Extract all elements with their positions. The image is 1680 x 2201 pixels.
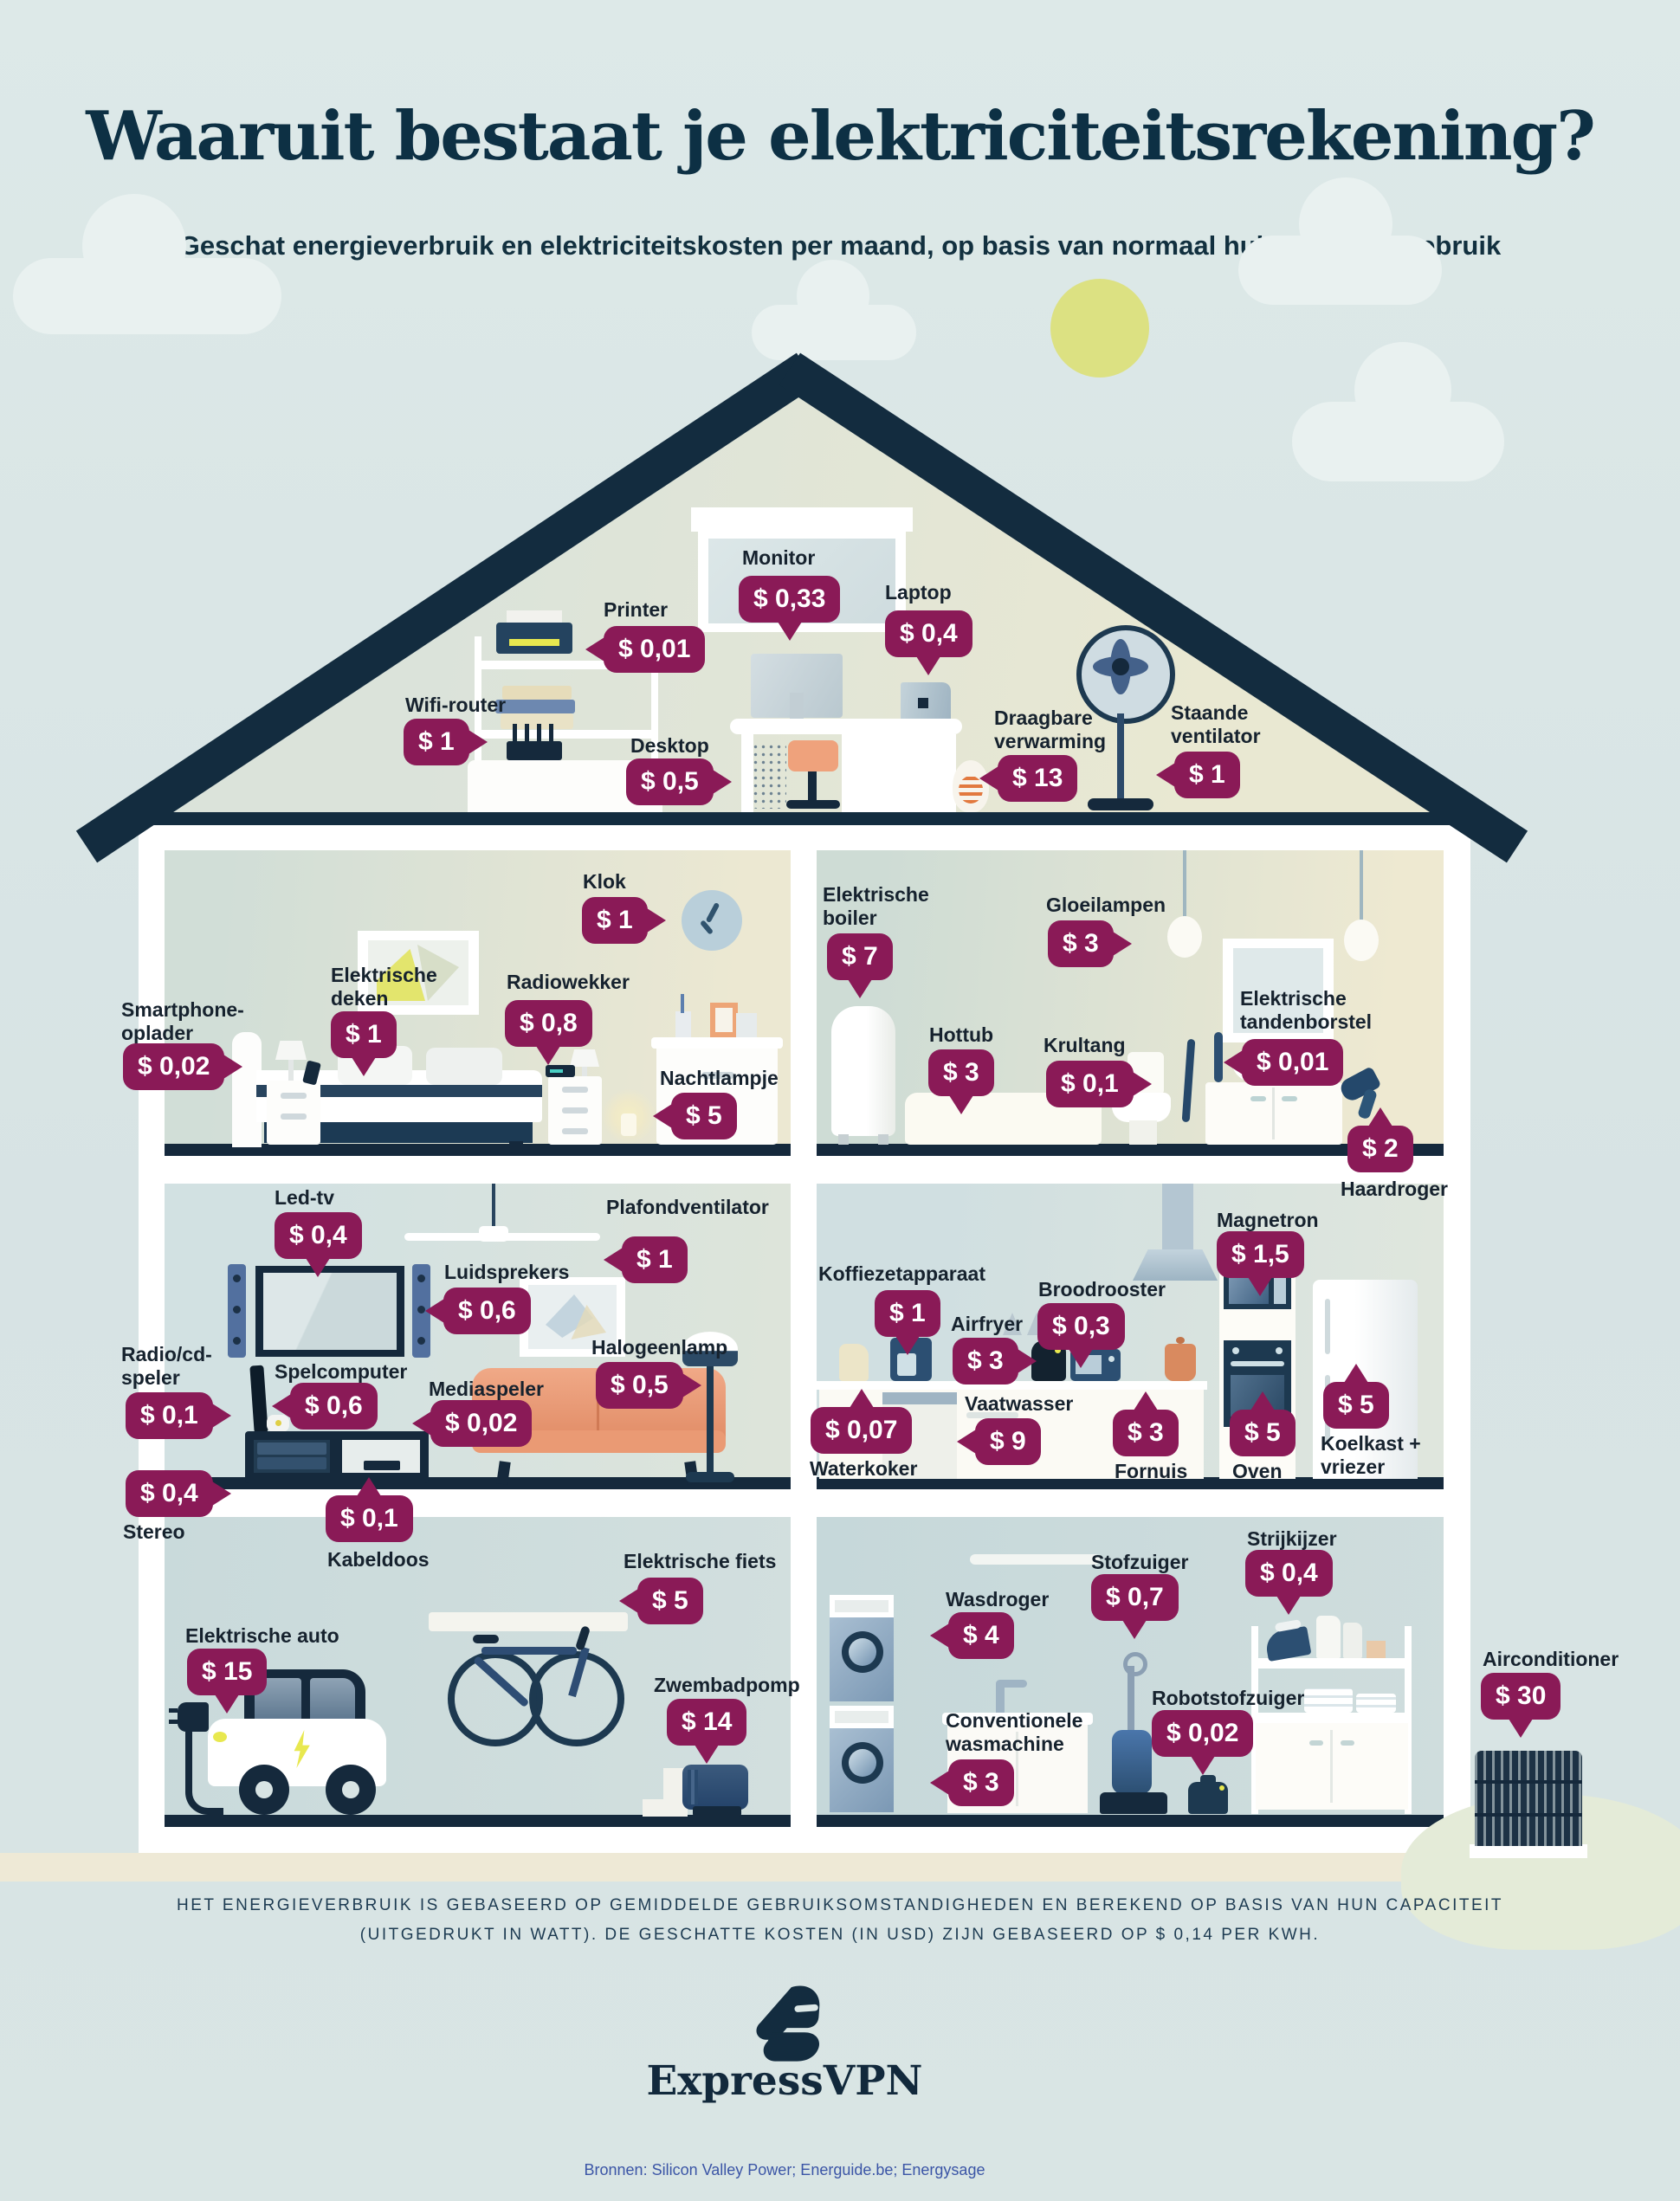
vacuum-price-badge: $ 0,7	[1091, 1574, 1179, 1621]
electric-car-label: Elektrische auto	[185, 1624, 339, 1648]
machine-panel	[835, 1711, 888, 1723]
toilet-pedestal	[1129, 1120, 1157, 1145]
printer-label: Printer	[604, 598, 668, 622]
coffee-pot	[897, 1353, 916, 1376]
nightstand	[267, 1081, 320, 1145]
hairdryer-price-badge: $ 2	[1347, 1126, 1413, 1172]
vanity-cabinet	[1205, 1082, 1342, 1145]
water-heater-illustration	[831, 1006, 895, 1136]
light-bulbs-label: Gloeilampen	[1046, 894, 1166, 917]
halogen-lamp-label: Halogeenlamp	[591, 1336, 727, 1359]
towel-stack	[1304, 1688, 1353, 1713]
laptop-label: Laptop	[885, 581, 952, 604]
disclaimer-line-2: (UITGEDRUKT IN WATT). DE GESCHATTE KOSTE…	[0, 1926, 1680, 1945]
cabinet-handle	[1282, 1096, 1297, 1101]
pool-pump-pipe-h	[643, 1799, 688, 1817]
pool-pump-base	[693, 1806, 741, 1817]
drawer-handle	[562, 1087, 588, 1093]
ceiling-fan-label: Plafondventilator	[606, 1196, 769, 1219]
water-heater-price-badge: $ 7	[827, 933, 893, 980]
coffee-maker-label: Koffiezetapparaat	[818, 1262, 985, 1286]
clock-price-badge: $ 1	[582, 897, 648, 944]
tv-screen	[263, 1273, 397, 1350]
speaker-cone	[233, 1337, 241, 1345]
curling-iron-price-badge: $ 0,1	[1046, 1061, 1134, 1107]
fridge-freezer-label: Koelkast + vriezer	[1321, 1432, 1421, 1479]
charging-plug-illustration	[178, 1702, 209, 1732]
electric-bike-label: Elektrische fiets	[624, 1550, 776, 1573]
desktop-tower-illustration	[752, 743, 786, 809]
dishwasher-price-badge: $ 9	[975, 1418, 1041, 1465]
light-bulbs-price-badge: $ 3	[1048, 920, 1114, 967]
machine-door-glass	[849, 1638, 876, 1666]
cooking-pot-illustration	[1165, 1344, 1196, 1381]
ac-divider	[1475, 1813, 1582, 1817]
pot-lid-knob	[1176, 1337, 1185, 1344]
cabinet-handle	[1341, 1740, 1354, 1746]
dryer-price-badge: $ 4	[948, 1612, 1014, 1659]
media-player-label: Mediaspeler	[429, 1378, 544, 1401]
robot-vacuum-price-badge: $ 0,02	[1152, 1710, 1253, 1757]
fridge-freezer-price-badge: $ 5	[1323, 1382, 1389, 1429]
stereo-price-badge: $ 0,4	[126, 1470, 213, 1517]
pendant-bulb	[1167, 916, 1202, 958]
dryer-illustration	[830, 1595, 894, 1701]
expressvpn-logo-icon	[750, 1985, 821, 2062]
machine-door-glass	[849, 1749, 876, 1777]
microwave-price-badge: $ 1,5	[1217, 1231, 1304, 1278]
cabinet-handle	[1309, 1740, 1323, 1746]
detergent-bottle	[1316, 1616, 1341, 1658]
table-lamp	[275, 1041, 307, 1060]
clock-label: Klok	[583, 870, 626, 894]
coffee-maker-price-badge: $ 1	[875, 1290, 940, 1337]
boiler-leg	[838, 1134, 849, 1145]
pen-cup	[675, 1011, 691, 1037]
desk	[730, 719, 962, 734]
wall-clock	[682, 890, 742, 951]
attic-window-cornice	[691, 507, 913, 532]
pump-rings	[688, 1770, 698, 1804]
halogen-lamp-price-badge: $ 0,5	[596, 1362, 683, 1409]
wifi-router-label: Wifi-router	[405, 694, 506, 717]
hottub-price-badge: $ 3	[928, 1049, 994, 1096]
hottub-label: Hottub	[929, 1023, 993, 1047]
monitor-price-badge: $ 0,33	[739, 576, 840, 623]
bike-saddle	[473, 1635, 499, 1643]
oven-label: Oven	[1232, 1460, 1283, 1483]
pen	[681, 994, 684, 1013]
speaker-illustration	[228, 1264, 246, 1358]
disclaimer-line-1: HET ENERGIEVERBRUIK IS GEBASEERD OP GEMI…	[0, 1896, 1680, 1915]
cabinet-divider	[1272, 1088, 1275, 1139]
iron-price-badge: $ 0,4	[1245, 1550, 1333, 1597]
radio-cd-player-label: Radio/cd- speler	[121, 1343, 212, 1390]
speakers-label: Luidsprekers	[444, 1261, 569, 1284]
chair-base	[786, 800, 840, 809]
ceiling-fan-price-badge: $ 1	[622, 1236, 688, 1283]
ceiling-light	[970, 1554, 1100, 1565]
clock-radio-illustration	[546, 1065, 575, 1077]
dishwasher-label: Vaatwasser	[965, 1392, 1073, 1416]
fan-hub	[1112, 658, 1129, 675]
roof	[0, 0, 1680, 875]
pool-pump-illustration	[682, 1765, 748, 1810]
wifi-router-illustration	[507, 741, 562, 760]
stereo-receiver	[257, 1457, 326, 1469]
chair-column	[808, 771, 817, 801]
speaker-cone	[233, 1306, 241, 1313]
stove-price-badge: $ 3	[1113, 1410, 1179, 1456]
oven-knob	[1276, 1347, 1283, 1354]
air-conditioner-label: Airconditioner	[1483, 1648, 1619, 1671]
detergent-box	[1367, 1641, 1386, 1658]
laptop-key	[918, 698, 928, 708]
vacuum-label: Stofzuiger	[1091, 1551, 1188, 1574]
plug-prong	[169, 1708, 178, 1713]
speaker-cone	[417, 1275, 425, 1282]
nightstand	[548, 1076, 602, 1145]
pendant-bulb	[1344, 920, 1379, 961]
washing-machine-price-badge: $ 3	[948, 1759, 1014, 1806]
media-player-price-badge: $ 0,02	[430, 1400, 532, 1447]
stereo-label: Stereo	[123, 1520, 185, 1544]
car-wheel	[239, 1765, 289, 1815]
card-frame	[736, 1013, 757, 1037]
towel-stack	[1356, 1694, 1396, 1713]
pendant-cord	[1183, 850, 1186, 918]
vacuum-pole	[1128, 1666, 1134, 1732]
hairdryer-label: Haardroger	[1341, 1178, 1448, 1201]
book	[495, 700, 575, 713]
standing-fan-label: Staande ventilator	[1171, 701, 1261, 748]
monitor-stand	[790, 693, 804, 719]
car-wheel	[326, 1765, 376, 1815]
ceiling-fan-hub	[479, 1226, 508, 1242]
books-illustration	[502, 686, 572, 700]
lamp-stem	[288, 1060, 294, 1081]
clock-radio-display	[550, 1069, 563, 1073]
sources-line: Bronnen: Silicon Valley Power; Energuide…	[0, 2161, 1625, 2179]
fan-cord	[492, 1184, 495, 1230]
kettle-price-badge: $ 0,07	[811, 1407, 912, 1454]
robot-vacuum-label: Robotstofzuiger	[1152, 1687, 1304, 1710]
fridge-handle	[1325, 1299, 1330, 1354]
electric-blanket-label: Elektrische deken	[331, 964, 437, 1010]
robot-bump	[1200, 1775, 1216, 1782]
washing-machine-label: Conventionele wasmachine	[946, 1709, 1082, 1756]
vacuum-base	[1100, 1792, 1167, 1814]
router-antenna	[549, 724, 553, 741]
game-console-price-badge: $ 0,6	[290, 1383, 378, 1430]
fan-base	[1088, 798, 1153, 810]
pool-pump-label: Zwembadpomp	[654, 1674, 800, 1697]
airfryer-label: Airfryer	[951, 1313, 1023, 1336]
wheel-hub	[342, 1781, 359, 1798]
infographic-page: Waaruit bestaat je elektriciteitsrekenin…	[0, 0, 1680, 2201]
bed-leg	[509, 1141, 523, 1153]
cabinet-divider	[1330, 1730, 1333, 1803]
laptop-price-badge: $ 0,4	[885, 610, 972, 657]
clock-hand	[706, 902, 720, 923]
drawer-handle	[281, 1093, 307, 1099]
airfryer-price-badge: $ 3	[953, 1338, 1018, 1384]
ac-unit-illustration	[1475, 1751, 1582, 1846]
monitor-label: Monitor	[742, 546, 815, 570]
led-tv-label: Led-tv	[275, 1186, 334, 1210]
vacuum-body	[1112, 1730, 1152, 1794]
printer-illustration	[507, 610, 562, 623]
drawer-handle	[281, 1113, 307, 1120]
water-heater-label: Elektrische boiler	[823, 883, 929, 930]
robot-vacuum-illustration	[1188, 1782, 1228, 1814]
desktop-label: Desktop	[630, 734, 709, 758]
radio-cd-player-price-badge: $ 0,1	[126, 1392, 213, 1439]
kettle-illustration	[839, 1344, 869, 1381]
game-console-label: Spelcomputer	[275, 1360, 407, 1384]
plug-prong	[169, 1720, 178, 1724]
electric-toothbrush-price-badge: $ 0,01	[1242, 1039, 1343, 1086]
printer-price-badge: $ 0,01	[604, 626, 705, 673]
charging-cable	[185, 1732, 223, 1815]
oven-handle	[1231, 1361, 1284, 1366]
washing-machine-illustration	[830, 1706, 894, 1812]
drawer-handle	[562, 1107, 588, 1113]
controller-button	[275, 1420, 281, 1426]
night-light-illustration	[621, 1113, 636, 1136]
clock-radio-label: Radiowekker	[507, 971, 630, 994]
portable-heater-price-badge: $ 13	[998, 755, 1077, 802]
pool-pump-price-badge: $ 14	[667, 1699, 746, 1746]
floor-slab	[817, 1815, 1444, 1827]
clock-radio-price-badge: $ 0,8	[505, 1000, 592, 1047]
ac-divider	[1475, 1780, 1582, 1784]
stove-label: Fornuis	[1115, 1460, 1187, 1483]
detergent-bottle	[1343, 1623, 1362, 1658]
office-chair	[788, 740, 838, 771]
laundry-faucet-spout	[996, 1680, 1027, 1688]
bike-frame-bar	[481, 1647, 577, 1655]
electric-car-price-badge: $ 15	[187, 1649, 267, 1695]
electric-bike-price-badge: $ 5	[637, 1578, 703, 1624]
electric-blanket-price-badge: $ 1	[331, 1011, 397, 1058]
night-light-price-badge: $ 5	[671, 1093, 737, 1139]
router-antenna	[513, 724, 517, 741]
drawer-handle	[562, 1128, 588, 1134]
range-hood-chimney	[1162, 1184, 1193, 1253]
robot-light	[1219, 1785, 1224, 1791]
stereo-receiver	[257, 1443, 326, 1455]
router-antenna	[537, 724, 541, 741]
dresser-top	[651, 1037, 783, 1049]
clock-hand	[700, 920, 714, 935]
desk-cabinet	[842, 734, 956, 812]
smartphone-charger-price-badge: $ 0,02	[123, 1043, 224, 1090]
router-antenna	[525, 724, 529, 741]
speaker-cone	[417, 1306, 425, 1313]
car-window	[310, 1678, 355, 1720]
electric-toothbrush-illustration	[1214, 1032, 1223, 1082]
speaker-cone	[417, 1337, 425, 1345]
night-light-label: Nachtlampje	[660, 1067, 779, 1090]
pendant-cord	[1360, 850, 1363, 921]
standing-fan-price-badge: $ 1	[1174, 752, 1240, 798]
bike-rack	[429, 1612, 628, 1631]
led-tv-illustration	[255, 1266, 404, 1357]
air-conditioner-price-badge: $ 30	[1481, 1673, 1560, 1720]
speakers-price-badge: $ 0,6	[443, 1288, 531, 1334]
cable-box-label: Kabeldoos	[327, 1548, 430, 1572]
lamp-pole	[707, 1366, 714, 1472]
boiler-leg	[878, 1134, 888, 1145]
dryer-label: Wasdroger	[946, 1588, 1049, 1611]
shelf-board	[1251, 1713, 1412, 1723]
dishwasher-panel	[882, 1392, 957, 1404]
curling-iron-label: Krultang	[1044, 1034, 1126, 1057]
microwave-label: Magnetron	[1217, 1209, 1319, 1232]
oven-knob	[1232, 1347, 1239, 1354]
machine-panel	[835, 1600, 888, 1612]
cabinet-handle	[1250, 1096, 1266, 1101]
pillow	[426, 1048, 502, 1085]
floor-slab	[165, 1815, 791, 1827]
wifi-router-price-badge: $ 1	[404, 719, 469, 765]
expressvpn-wordmark: ExpressVPN	[0, 2057, 1625, 2105]
lamp-stem	[582, 1067, 587, 1076]
led-tv-price-badge: $ 0,4	[275, 1212, 362, 1259]
photo-frame-inner	[715, 1008, 733, 1032]
toaster-knob	[1108, 1356, 1115, 1362]
electric-toothbrush-label: Elektrische tandenborstel	[1240, 987, 1372, 1034]
portable-heater-label: Draagbare verwarming	[994, 707, 1106, 753]
lamp-base	[686, 1472, 734, 1482]
speaker-cone	[233, 1275, 241, 1282]
cable-box-price-badge: $ 0,1	[326, 1495, 413, 1542]
toaster-label: Broodrooster	[1038, 1278, 1166, 1301]
printer-paper-slot	[509, 639, 559, 646]
oven-price-badge: $ 5	[1230, 1410, 1296, 1456]
table-lamp	[570, 1049, 599, 1067]
toaster-price-badge: $ 0,3	[1037, 1303, 1125, 1350]
kettle-label: Waterkoker	[810, 1457, 917, 1481]
desktop-price-badge: $ 0,5	[626, 758, 714, 805]
shelf-cabinet	[1256, 1723, 1408, 1810]
printer-body	[496, 623, 572, 654]
cable-box-illustration	[364, 1461, 400, 1470]
wheel-hub	[255, 1781, 273, 1798]
fan-pole	[1117, 713, 1124, 800]
tv-stand	[245, 1431, 429, 1483]
smartphone-charger-label: Smartphone- oplader	[121, 998, 244, 1045]
ac-slab	[1470, 1844, 1587, 1858]
iron-label: Strijkijzer	[1247, 1527, 1337, 1551]
